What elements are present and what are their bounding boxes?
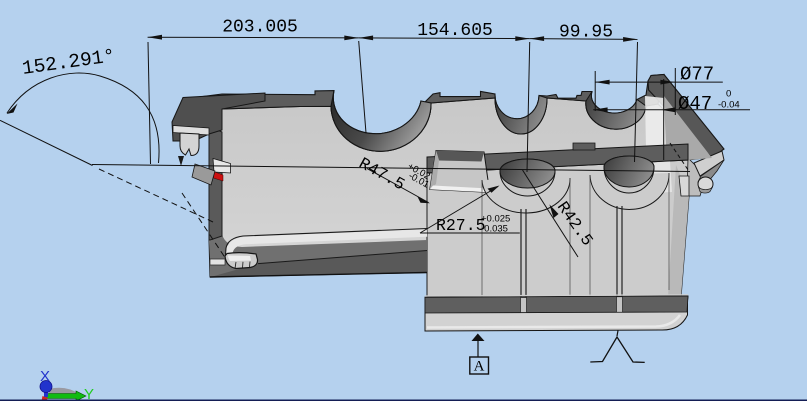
svg-text:X: X [40,368,50,385]
svg-text:203.005: 203.005 [222,18,298,38]
svg-text:A: A [474,359,485,375]
svg-text:0: 0 [726,89,731,100]
svg-text:Ø47: Ø47 [678,93,712,115]
svg-text:154.605: 154.605 [417,21,493,41]
svg-text:-0.035: -0.035 [481,224,508,235]
svg-text:Ø77: Ø77 [680,64,714,86]
svg-text:R27.5: R27.5 [436,216,486,235]
svg-text:99.95: 99.95 [559,23,613,43]
svg-text:-0.04: -0.04 [718,100,740,111]
svg-text:Y: Y [84,386,94,401]
